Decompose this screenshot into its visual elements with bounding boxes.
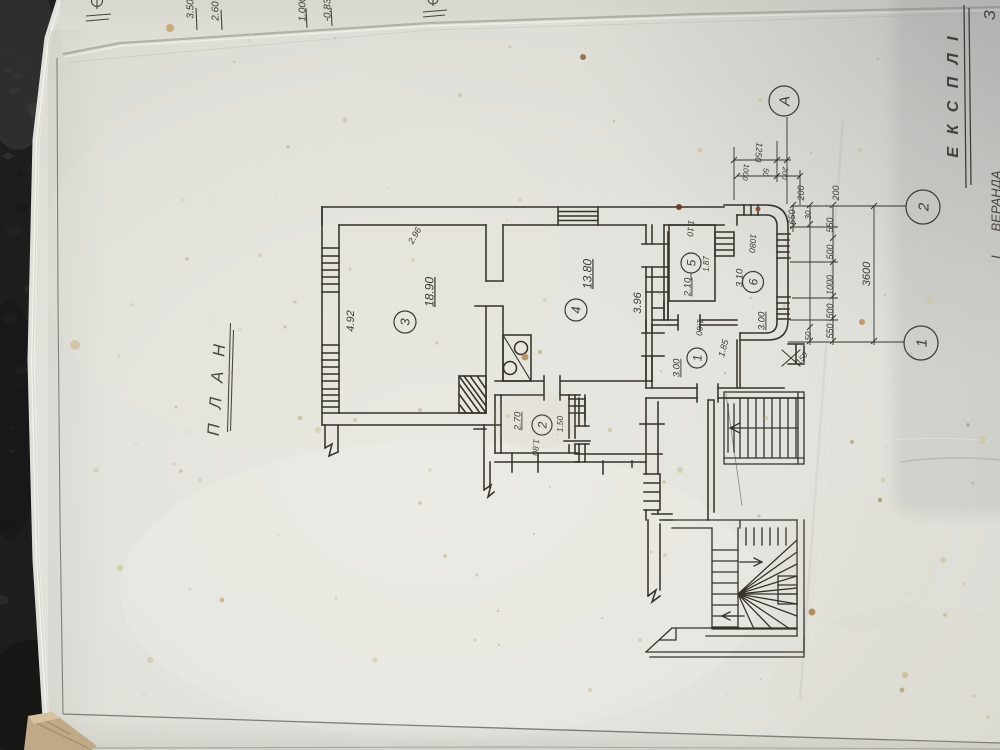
svg-text:1250: 1250 (753, 142, 765, 163)
svg-text:ВЕРАНДА: ВЕРАНДА (989, 171, 1000, 232)
svg-text:2.10: 2.10 (682, 277, 693, 297)
svg-text:200: 200 (796, 185, 806, 201)
svg-text:А: А (776, 96, 793, 107)
svg-text:3.96: 3.96 (632, 291, 644, 313)
svg-text:650: 650 (787, 209, 797, 224)
svg-text:3.50: 3.50 (186, 0, 197, 19)
svg-text:4.92: 4.92 (345, 310, 357, 331)
svg-text:З: З (982, 10, 999, 20)
svg-text:І: І (989, 255, 1000, 259)
svg-text:2: 2 (915, 202, 932, 212)
svg-text:6: 6 (746, 278, 760, 285)
svg-text:4: 4 (569, 306, 584, 313)
svg-text:1.000: 1.000 (298, 0, 309, 22)
svg-text:3.00: 3.00 (756, 311, 767, 330)
svg-text:3.10: 3.10 (734, 268, 745, 287)
svg-text:50: 50 (761, 168, 771, 178)
svg-text:3: 3 (398, 318, 413, 326)
svg-text:2.60: 2.60 (211, 1, 222, 22)
svg-text:30: 30 (804, 210, 813, 219)
svg-text:1000: 1000 (741, 164, 751, 182)
svg-text:1: 1 (913, 339, 930, 347)
svg-text:1.60: 1.60 (694, 319, 705, 337)
svg-text:13.80: 13.80 (580, 259, 594, 289)
svg-text:3600: 3600 (861, 261, 873, 286)
svg-text:200: 200 (780, 166, 790, 181)
svg-text:1.87: 1.87 (702, 256, 711, 272)
svg-text:18.90: 18.90 (422, 277, 436, 307)
svg-text:5: 5 (684, 259, 698, 266)
svg-text:3.00: 3.00 (671, 358, 682, 377)
svg-text:1: 1 (690, 355, 704, 362)
svg-text:-0.83: -0.83 (323, 0, 334, 21)
svg-text:50: 50 (804, 331, 813, 340)
svg-text:Е К С П Л І: Е К С П Л І (945, 32, 962, 157)
svg-text:1080: 1080 (747, 233, 759, 253)
svg-text:1.10: 1.10 (685, 220, 696, 238)
